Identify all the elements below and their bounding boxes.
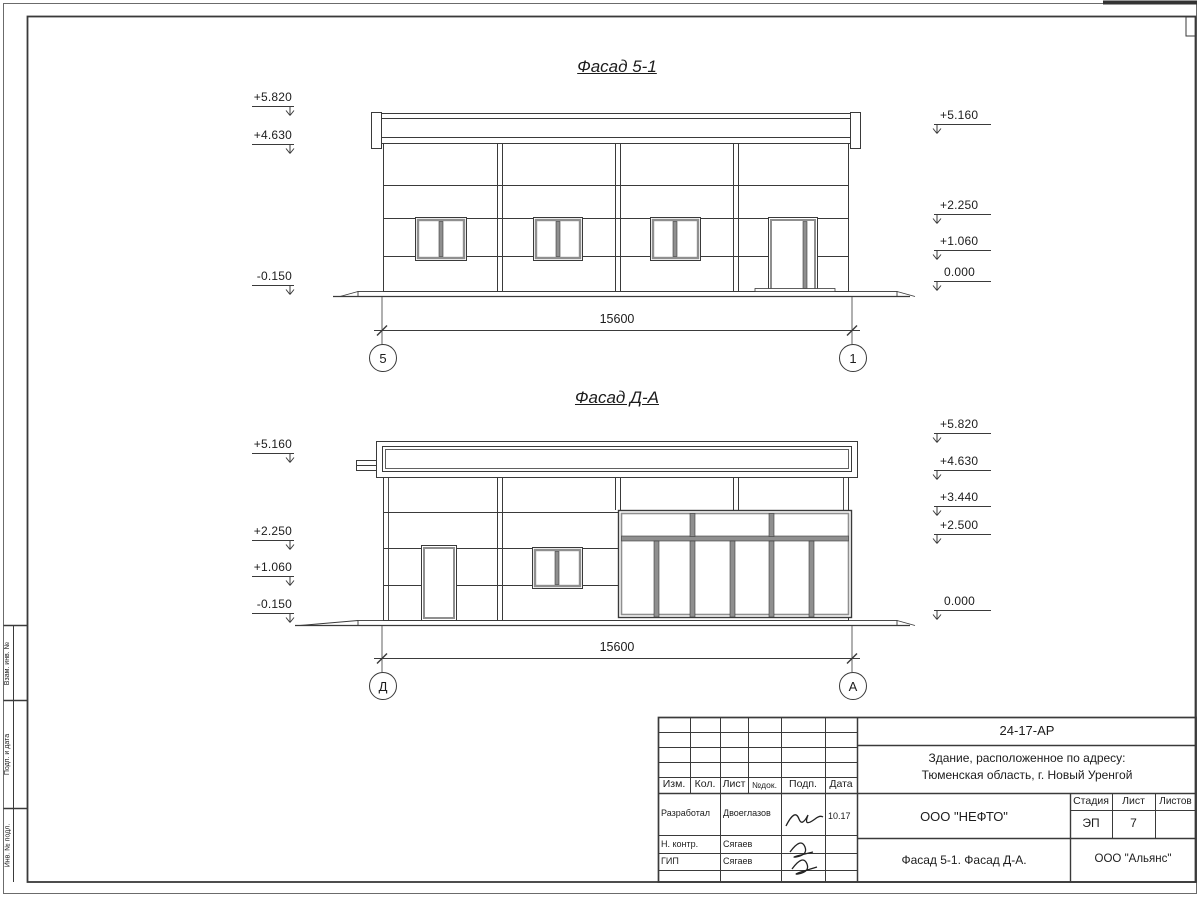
signature-marks <box>786 815 823 874</box>
company-name: ООО "НЕФТО" <box>858 810 1070 824</box>
elevation-label: +5.820 <box>940 418 1010 431</box>
elevation-label: +5.820 <box>230 91 292 104</box>
axis-bubble-5: 5 <box>369 344 397 372</box>
elevation-label: +4.630 <box>230 129 292 142</box>
drawing-sheet: 5 1 Д А Фасад 5-1 Фасад Д-А 15600 15600 … <box>0 0 1200 900</box>
dimension-f1: 15600 <box>572 313 662 327</box>
col-header-ndok: №док. <box>748 781 781 790</box>
axis-bubble-1: 1 <box>839 344 867 372</box>
strip-text: Инв. № подл. <box>5 824 12 868</box>
name-ncontr: Сягаев <box>723 840 752 850</box>
strip-label-vzam: Взам. инв. № <box>3 626 13 700</box>
name-gip: Сягаев <box>723 857 752 867</box>
axis-letter: А <box>849 679 858 694</box>
elevation-label: +4.630 <box>940 455 1010 468</box>
strip-label-inv: Инв. № подл. <box>3 809 13 882</box>
name-developed: Двоеглазов <box>723 809 771 819</box>
axis-bubble-d: Д <box>369 672 397 700</box>
sheet-label: Лист <box>1112 796 1155 808</box>
facade-1-geometry <box>333 113 915 345</box>
sheets-label: Листов <box>1155 796 1196 807</box>
contractor-name: ООО "Альянс" <box>1070 853 1196 866</box>
strip-text: Подп. и дата <box>5 734 12 775</box>
side-door <box>422 546 457 621</box>
window-1 <box>416 218 467 261</box>
entrance-door <box>769 218 818 292</box>
axis-letter: 5 <box>379 351 386 366</box>
address-line-1: Здание, расположенное по адресу: <box>858 752 1196 765</box>
col-header-list: Лист <box>720 779 748 791</box>
doc-number: 24-17-АР <box>858 724 1196 738</box>
elevation-label: +5.160 <box>230 438 292 451</box>
elevation-label: +5.160 <box>940 109 1010 122</box>
elevation-label: +2.250 <box>940 199 1010 212</box>
col-header-data: Дата <box>825 779 857 791</box>
col-header-kol: Кол. <box>690 779 720 791</box>
axis-bubble-a: А <box>839 672 867 700</box>
elevation-label: +2.250 <box>230 525 292 538</box>
axis-letter: 1 <box>849 351 856 366</box>
sheet-title: Фасад 5-1. Фасад Д-А. <box>858 854 1070 867</box>
elevation-label: +3.440 <box>940 491 1010 504</box>
facade-2-title: Фасад Д-А <box>527 389 707 408</box>
facade-1-title: Фасад 5-1 <box>527 58 707 77</box>
elevation-label: 0.000 <box>944 266 1014 279</box>
elevation-label: +1.060 <box>940 235 1010 248</box>
col-header-podp: Подп. <box>781 779 825 791</box>
window-3 <box>651 218 701 261</box>
elevation-label: +1.060 <box>230 561 292 574</box>
role-gip: ГИП <box>661 857 679 867</box>
axis-letter: Д <box>379 679 388 694</box>
facade-2-geometry <box>295 442 915 673</box>
strip-text: Взам. инв. № <box>5 641 12 684</box>
stage-value: ЭП <box>1070 817 1112 830</box>
col-header-izm: Изм. <box>658 779 690 791</box>
elevation-label: +2.500 <box>940 519 1010 532</box>
elevation-label: 0.000 <box>944 595 1014 608</box>
elevation-label: -0.150 <box>230 270 292 283</box>
role-ncontr: Н. контр. <box>661 840 698 850</box>
window-2 <box>534 218 583 261</box>
sheet-value: 7 <box>1112 817 1155 830</box>
stage-label: Стадия <box>1070 796 1112 808</box>
window-4 <box>533 548 583 589</box>
date-developed: 10.17 <box>828 812 851 822</box>
strip-label-podp: Подп. и дата <box>3 701 13 808</box>
storefront-glazing <box>619 511 852 618</box>
dimension-f2: 15600 <box>572 641 662 655</box>
address-line-2: Тюменская область, г. Новый Уренгой <box>858 769 1196 782</box>
role-developed: Разработал <box>661 809 710 819</box>
elevation-label: -0.150 <box>230 598 292 611</box>
